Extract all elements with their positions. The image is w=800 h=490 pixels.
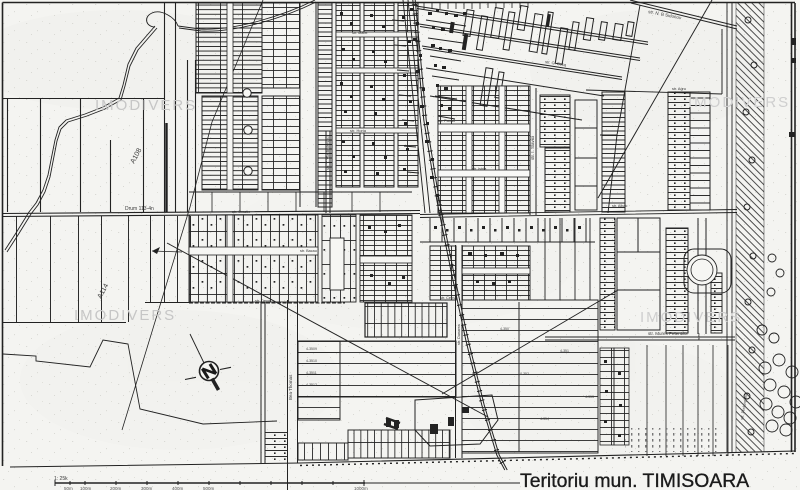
svg-text:IMODIVERS: IMODIVERS xyxy=(74,307,176,324)
svg-text:IMODIVERS: IMODIVERS xyxy=(640,309,742,326)
svg-text:IMODIVERS: IMODIVERS xyxy=(95,97,197,114)
svg-text:IMODIVERS: IMODIVERS xyxy=(688,94,790,111)
svg-text:str. Matei: str. Matei xyxy=(352,31,368,35)
svg-text:4-353: 4-353 xyxy=(585,395,594,399)
svg-text:4-3510: 4-3510 xyxy=(306,359,317,363)
svg-text:1000m: 1000m xyxy=(354,486,368,490)
svg-text:str. Horia: str. Horia xyxy=(350,128,367,133)
svg-text:4-354: 4-354 xyxy=(540,417,549,421)
svg-text:str. Istria: str. Istria xyxy=(472,167,487,171)
svg-text:str. T. Vladimirescu: str. T. Vladimirescu xyxy=(325,137,330,171)
svg-text:1: 25k: 1: 25k xyxy=(54,476,68,482)
svg-text:200m: 200m xyxy=(110,486,122,490)
svg-text:500m: 500m xyxy=(203,486,215,490)
svg-text:str. Cerna: str. Cerna xyxy=(440,296,457,300)
svg-text:Teritoriu mun. TIMISOARA: Teritoriu mun. TIMISOARA xyxy=(520,470,749,490)
svg-text:4-3512: 4-3512 xyxy=(306,383,317,387)
svg-text:Bea Thomas: Bea Thomas xyxy=(288,374,293,400)
svg-text:str. Dunarea: str. Dunarea xyxy=(457,323,461,345)
svg-text:str. Panait: str. Panait xyxy=(438,119,456,123)
svg-text:str. Agru: str. Agru xyxy=(672,87,686,91)
svg-text:4-3509: 4-3509 xyxy=(306,347,317,351)
svg-text:str. Albac: str. Albac xyxy=(612,204,628,208)
svg-text:300m: 300m xyxy=(141,486,153,490)
svg-text:4-352: 4-352 xyxy=(520,372,529,376)
svg-text:Drum 113-4n: Drum 113-4n xyxy=(125,206,154,212)
svg-text:400m: 400m xyxy=(172,486,184,490)
svg-text:4-351: 4-351 xyxy=(560,349,569,353)
svg-text:str. Deva: str. Deva xyxy=(255,299,271,303)
svg-text:str. Bacau: str. Bacau xyxy=(300,249,317,253)
svg-text:4-3511: 4-3511 xyxy=(306,371,317,375)
svg-text:50m: 50m xyxy=(64,486,73,490)
svg-text:100m: 100m xyxy=(80,486,92,490)
svg-text:4-350: 4-350 xyxy=(500,327,509,331)
svg-text:str. Mures Petentilor: str. Mures Petentilor xyxy=(648,331,689,336)
svg-text:str. I. Slavici: str. I. Slavici xyxy=(530,136,535,160)
svg-text:str. Orastie: str. Orastie xyxy=(232,210,250,214)
svg-text:alee: alee xyxy=(697,333,701,340)
